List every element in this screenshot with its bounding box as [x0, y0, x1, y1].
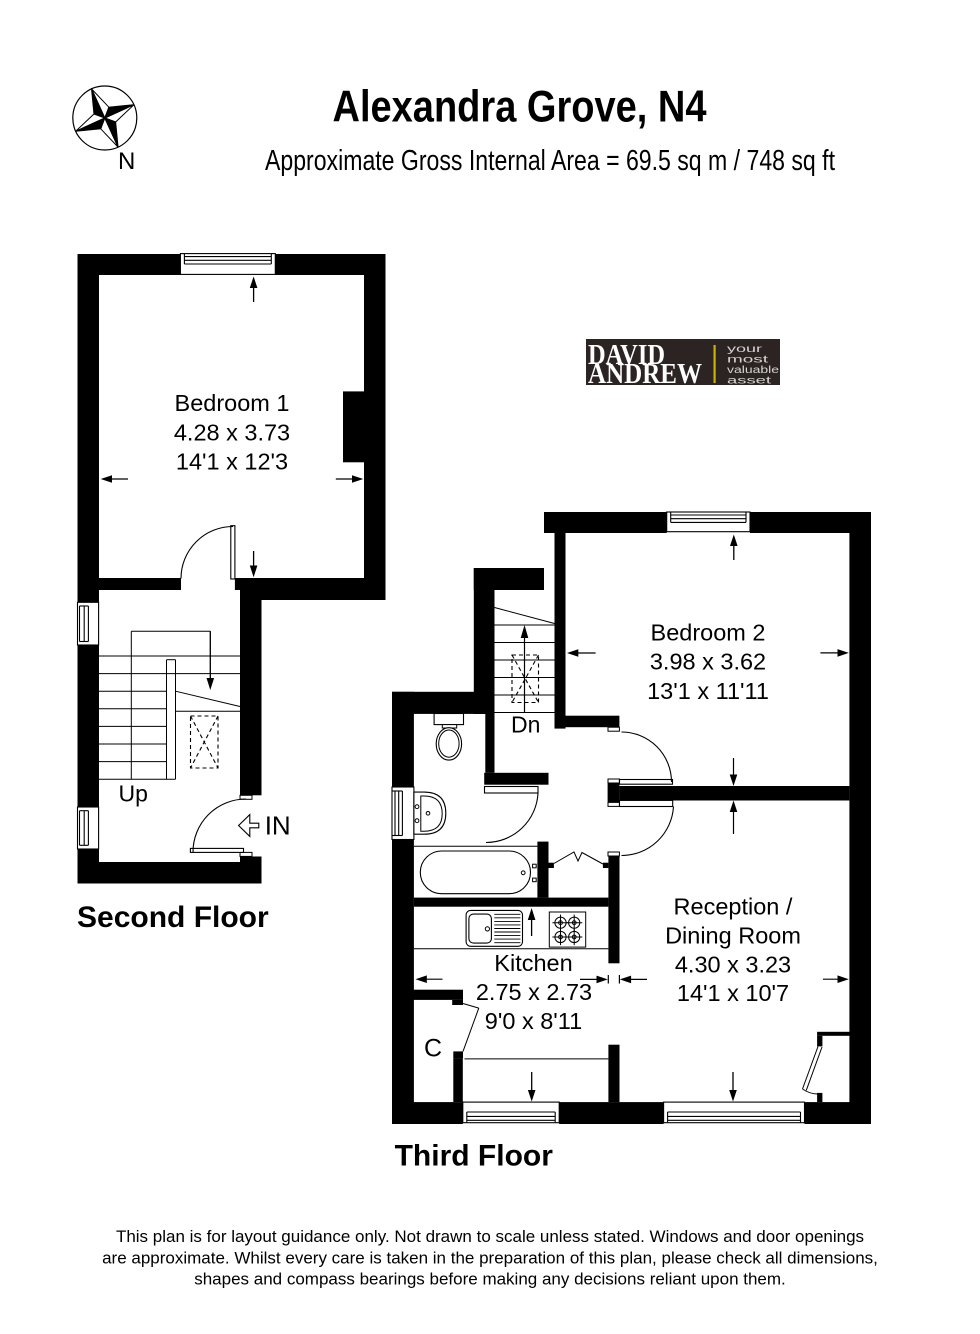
svg-text:Bedroom 1: Bedroom 1: [175, 390, 290, 416]
svg-text:14'1 x 12'3: 14'1 x 12'3: [176, 449, 288, 475]
svg-text:are approximate. Whilst every: are approximate. Whilst every care is ta…: [102, 1249, 878, 1268]
svg-text:2.75 x 2.73: 2.75 x 2.73: [476, 979, 592, 1005]
svg-text:valuable: valuable: [727, 365, 780, 376]
svg-text:9'0 x 8'11: 9'0 x 8'11: [485, 1008, 582, 1034]
svg-text:4.28 x 3.73: 4.28 x 3.73: [174, 420, 290, 446]
svg-text:Approximate Gross Internal Are: Approximate Gross Internal Area = 69.5 s…: [265, 144, 835, 176]
svg-text:Reception /: Reception /: [674, 893, 793, 919]
svg-text:Dining Room: Dining Room: [665, 922, 801, 948]
svg-text:most: most: [727, 355, 768, 366]
svg-text:ANDREW: ANDREW: [588, 358, 702, 390]
svg-text:4.30 x 3.23: 4.30 x 3.23: [675, 951, 791, 977]
svg-text:asset: asset: [727, 376, 771, 387]
svg-text:13'1 x 11'11: 13'1 x 11'11: [647, 678, 769, 704]
svg-text:Dn: Dn: [511, 712, 540, 738]
svg-text:shapes and compass bearings be: shapes and compass bearings before makin…: [194, 1270, 786, 1289]
svg-text:Third Floor: Third Floor: [395, 1140, 554, 1173]
svg-text:This plan is for layout guidan: This plan is for layout guidance only. N…: [116, 1227, 864, 1246]
svg-text:Alexandra Grove, N4: Alexandra Grove, N4: [333, 83, 707, 132]
svg-text:C: C: [424, 1035, 442, 1063]
svg-text:Second Floor: Second Floor: [77, 901, 269, 934]
svg-text:Up: Up: [119, 781, 148, 807]
svg-text:14'1 x 10'7: 14'1 x 10'7: [677, 980, 789, 1006]
svg-text:N: N: [118, 148, 135, 175]
svg-text:3.98 x 3.62: 3.98 x 3.62: [650, 649, 766, 675]
svg-text:Bedroom 2: Bedroom 2: [651, 620, 766, 646]
svg-text:your: your: [727, 344, 763, 355]
svg-text:IN: IN: [265, 811, 291, 841]
svg-text:Kitchen: Kitchen: [494, 950, 572, 976]
